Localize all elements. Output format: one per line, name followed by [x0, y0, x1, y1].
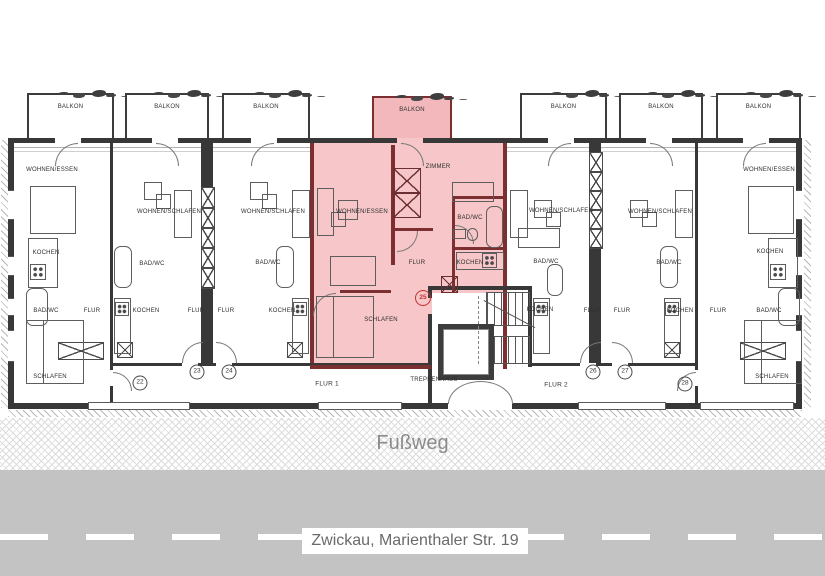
shaft-x-icon-highlighted [393, 168, 421, 194]
partition-apt24-apt25 [310, 143, 314, 369]
window-left [8, 190, 14, 220]
shaft-x-icon [589, 171, 603, 192]
kitchen-x-icon [441, 276, 458, 293]
street-band: Zwickau, Marienthaler Str. 19 [0, 470, 825, 576]
room-label-apt22-kitchen: KOCHEN [33, 250, 60, 256]
balcony-5: BALKON [520, 93, 607, 142]
room-label-apt23-hall: FLUR [188, 308, 204, 314]
balcony-label: BALKON [29, 104, 112, 110]
apartment-number-23: 23 [190, 365, 205, 380]
balcony-label: BALKON [522, 104, 605, 110]
room-label-apt23-bath: BAD/WC [139, 261, 164, 267]
door-arc [612, 342, 633, 363]
balcony-6: BALKON [619, 93, 703, 142]
room-label-apt27-living: WOHNEN/SCHLAFEN [628, 209, 692, 215]
apartment-number-22: 22 [133, 376, 148, 391]
footpath-band: Fußweg [0, 418, 825, 470]
balcony-label: BALKON [621, 104, 701, 110]
wall-hatch-left [1, 140, 8, 408]
window-left [8, 256, 14, 276]
stove-icon [115, 302, 129, 316]
room-label-apt24-bath: BAD/WC [255, 260, 280, 266]
room-label-apt28-bath: BAD/WC [756, 308, 781, 314]
room-label-apt25-bath: BAD/WC [457, 215, 482, 221]
stairs-walk-line [478, 296, 479, 364]
bathtub [114, 246, 132, 288]
balcony-7: BALKON [716, 93, 801, 142]
toilet-icon [467, 228, 478, 241]
shaft-x-icon [589, 152, 603, 173]
window [318, 402, 402, 410]
shaft-x-icon [201, 187, 215, 209]
shaft-x-icon [201, 207, 215, 229]
door-arc [182, 342, 203, 363]
dining-table [30, 186, 76, 234]
balcony-label: BALKON [718, 104, 799, 110]
room-label-apt26-hall: FLUR [584, 308, 600, 314]
table [546, 212, 561, 227]
bathtub [486, 206, 503, 248]
apartment-number-25-highlighted: 25 [415, 290, 431, 306]
footpath-label: Fußweg [0, 418, 825, 468]
shaft-x-icon [589, 228, 603, 249]
stove-icon [482, 253, 497, 268]
room-label-apt26-living: WOHNEN/SCHLAFEN [529, 208, 593, 214]
room-label-apt27-kitchen: KOCHEN [667, 308, 694, 314]
window-left [8, 298, 14, 316]
apartment-number-28: 28 [678, 377, 693, 392]
balcony-plants-icon [187, 90, 201, 97]
balcony-plants-icon [681, 90, 695, 97]
apartment-number-27: 27 [618, 365, 633, 380]
room-label-apt28-kitchen: KOCHEN [757, 249, 784, 255]
door-arc [113, 372, 132, 391]
dining-table [330, 256, 376, 286]
balcony-4-highlighted: BALKON [372, 96, 452, 140]
shaft-wall-left-top [201, 143, 213, 187]
corridor1-label: FLUR 1 [315, 381, 339, 388]
room-label-apt27-bath: BAD/WC [656, 260, 681, 266]
table [262, 194, 277, 209]
balcony-label: BALKON [374, 107, 450, 113]
window-left [8, 330, 14, 362]
window [578, 402, 666, 410]
balcony-plants-icon [430, 93, 444, 100]
shaft-x-icon-highlighted [393, 192, 421, 218]
balcony-1: BALKON [27, 93, 114, 142]
room-label-apt26-bath: BAD/WC [533, 259, 558, 265]
balcony-plants-icon [92, 90, 106, 97]
kitchen-counter [28, 238, 58, 288]
room-label-apt23-kitchen: KOCHEN [133, 308, 160, 314]
balcony-3: BALKON [222, 93, 310, 142]
shaft-x-icon [201, 227, 215, 249]
wall-hatch-bottom [8, 410, 802, 417]
dining-table [748, 186, 794, 234]
single-bed [452, 182, 494, 202]
room-label-apt25-bedroom: SCHLAFEN [364, 317, 398, 323]
balcony-plants-icon [585, 90, 599, 97]
entrance-door-arc [448, 381, 481, 404]
stairwell-label: TREPPENHAUS [410, 377, 457, 383]
room-label-apt26-kitchen: KOCHEN [527, 307, 554, 313]
stove-icon [770, 264, 786, 280]
apt25-wall-bottom [310, 365, 431, 369]
room-label-apt22-bath: BAD/WC [33, 308, 58, 314]
room-label-apt25-hall: FLUR [409, 260, 425, 266]
balcony-label: BALKON [127, 104, 207, 110]
wall-hatch-right [804, 140, 811, 408]
street-address-label: Zwickau, Marienthaler Str. 19 [302, 528, 528, 554]
single-bed [518, 228, 560, 248]
apartment-number-26: 26 [586, 365, 601, 380]
room-label-apt24-hall: FLUR [218, 308, 234, 314]
kitchen-counter [768, 238, 798, 288]
window-right [796, 190, 802, 220]
room-label-apt22-hall: FLUR [84, 308, 100, 314]
door-arc [580, 342, 601, 363]
room-label-apt24-living: WOHNEN/SCHLAFEN [241, 209, 305, 215]
sink-icon [453, 229, 466, 239]
shaft-x-icon [201, 267, 215, 289]
apt25-wall-living-schlafen [340, 290, 391, 293]
partition-apt27-apt28 [695, 143, 698, 403]
room-label-apt27-hall: FLUR [614, 308, 630, 314]
shaft-x-icon [201, 247, 215, 269]
room-label-apt25-living: WOHNEN/ESSEN [336, 209, 388, 215]
table [156, 194, 171, 209]
balcony-plants-icon [779, 90, 793, 97]
room-label-apt24-kitchen: KOCHEN [269, 308, 296, 314]
window [88, 402, 190, 410]
floorplan-canvas: BALKON BALKON BALKON BALKON BALKON BALKO… [0, 0, 825, 576]
room-label-apt23-living: WOHNEN/SCHLAFEN [137, 209, 201, 215]
room-label-apt28-bedroom: SCHLAFEN [755, 374, 789, 380]
corridor2-label: FLUR 2 [544, 382, 568, 389]
entrance-door-arc [480, 381, 513, 404]
bathtub [276, 246, 294, 288]
double-bed-highlighted [316, 296, 374, 358]
balcony-plants-icon [288, 90, 302, 97]
stove-icon [30, 264, 46, 280]
apartment-number-24: 24 [222, 365, 237, 380]
room-label-apt28-hall: FLUR [710, 308, 726, 314]
shaft-wall-right-top [589, 143, 601, 152]
room-label-apt28-living: WOHNEN/ESSEN [743, 167, 795, 173]
elevator-shaft [438, 324, 494, 380]
bathtub [547, 264, 563, 296]
balcony-2: BALKON [125, 93, 209, 142]
room-label-apt22-bedroom: SCHLAFEN [33, 374, 67, 380]
room-label-apt25-kitchen: KOCHEN [457, 260, 484, 266]
window [700, 402, 794, 410]
balcony-label: BALKON [224, 104, 308, 110]
room-label-apt25-room: ZIMMER [426, 164, 451, 170]
bathtub [660, 246, 678, 288]
door-arc [216, 342, 237, 363]
room-label-apt22-living: WOHNEN/ESSEN [26, 167, 78, 173]
